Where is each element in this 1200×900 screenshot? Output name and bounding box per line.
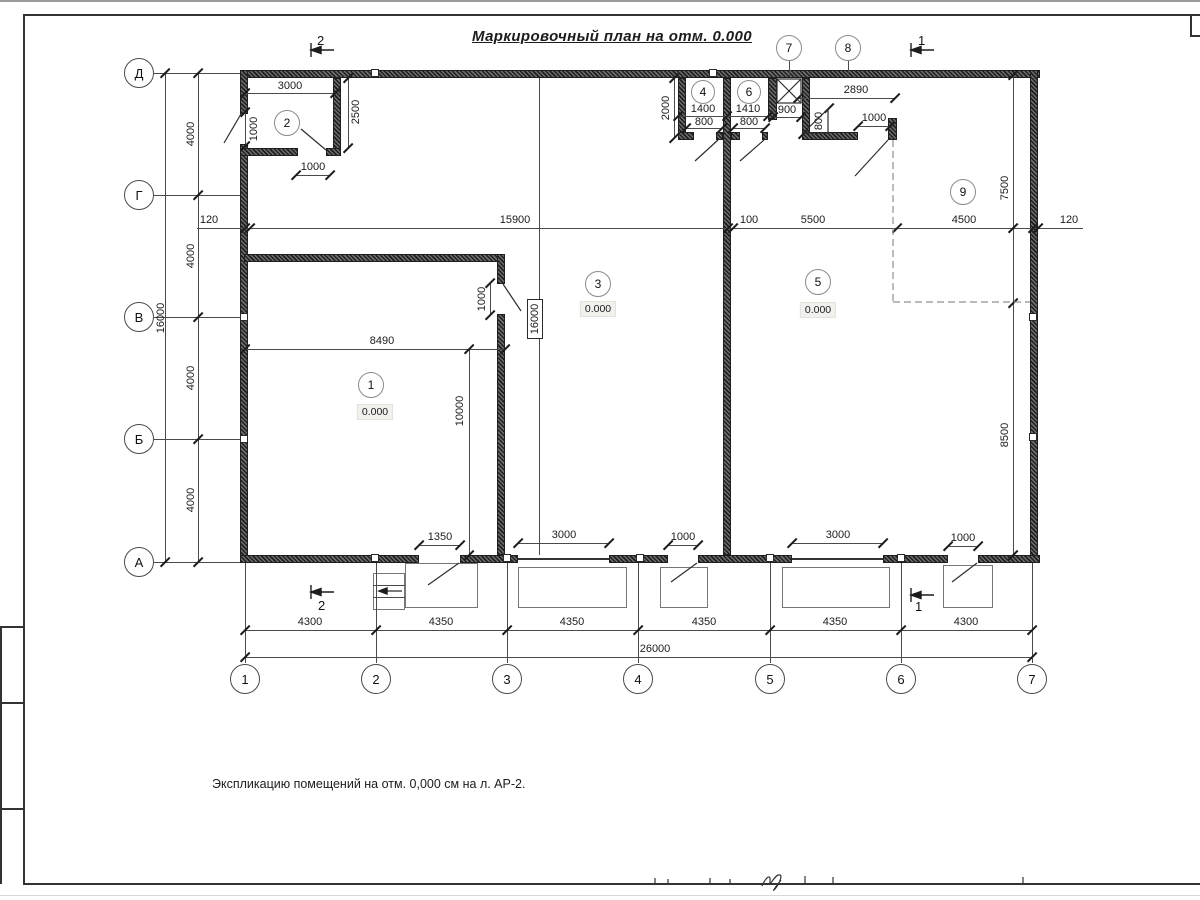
dim-label: 120 — [200, 214, 218, 226]
dim-label: 1000 — [951, 532, 975, 544]
dim-label: 120 — [1060, 214, 1078, 226]
linework-layer — [0, 0, 1200, 900]
elevation-mark: 0.000 — [357, 404, 393, 420]
axis-bubble-col: 2 — [361, 664, 391, 694]
dim-label: 2500 — [350, 100, 362, 124]
axis-bubble-row: Г — [124, 180, 154, 210]
axis-label: 1 — [241, 672, 248, 687]
room-bubble: 3 — [585, 271, 611, 297]
dim-label: 100 — [740, 214, 758, 226]
dim-label: 1350 — [428, 531, 452, 543]
axis-bubble-col: 6 — [886, 664, 916, 694]
dim-label: 3000 — [552, 529, 576, 541]
room-number: 2 — [284, 116, 291, 130]
axis-bubble-row: Б — [124, 424, 154, 454]
dim-label: 4000 — [185, 122, 197, 146]
axis-label: 6 — [897, 672, 904, 687]
dim-label: 26000 — [640, 643, 671, 655]
axis-bubble-row: В — [124, 302, 154, 332]
dim-label: 2000 — [660, 96, 672, 120]
axis-bubble-row: А — [124, 547, 154, 577]
axis-bubble-row: Д — [124, 58, 154, 88]
axis-bubble-col: 3 — [492, 664, 522, 694]
dim-label: 1410 — [736, 103, 760, 115]
axis-label: В — [135, 310, 144, 325]
dim-label: 15900 — [500, 214, 531, 226]
dim-label: 4350 — [560, 616, 584, 628]
dim-label: 1000 — [671, 531, 695, 543]
dim-label: 8490 — [370, 335, 394, 347]
room-bubble: 5 — [805, 269, 831, 295]
dim-label: 1400 — [691, 103, 715, 115]
dim-label: 900 — [778, 104, 796, 116]
axis-label: Г — [135, 188, 142, 203]
dim-label: 10000 — [454, 396, 466, 427]
axis-label: Д — [135, 66, 144, 81]
dim-label: 2890 — [844, 84, 868, 96]
dim-label: 16000 — [529, 304, 541, 335]
room-bubble: 4 — [691, 80, 715, 104]
elevation-mark: 0.000 — [800, 302, 836, 318]
room-number: 5 — [815, 275, 822, 289]
room-bubble: 9 — [950, 179, 976, 205]
axis-label: А — [135, 555, 144, 570]
signature-scribble — [762, 875, 781, 891]
dim-label: 16000 — [155, 303, 167, 334]
room-bubble: 7 — [776, 35, 802, 61]
room-bubble: 1 — [358, 372, 384, 398]
dim-label: 4350 — [823, 616, 847, 628]
room-bubble: 8 — [835, 35, 861, 61]
axis-label: 3 — [503, 672, 510, 687]
room-number: 3 — [595, 277, 602, 291]
dim-label: 7500 — [999, 176, 1011, 200]
axis-label: 5 — [766, 672, 773, 687]
axis-label: Б — [135, 432, 144, 447]
dim-label: 1000 — [476, 287, 488, 311]
dim-label: 800 — [695, 116, 713, 128]
elevation-mark: 0.000 — [580, 301, 616, 317]
axis-label: 2 — [372, 672, 379, 687]
axis-bubble-col: 7 — [1017, 664, 1047, 694]
dim-label: 5500 — [801, 214, 825, 226]
axis-bubble-col: 4 — [623, 664, 653, 694]
room-number: 7 — [786, 41, 793, 55]
dim-label: 4350 — [429, 616, 453, 628]
room-bubble: 6 — [737, 80, 761, 104]
section-label: 1 — [915, 599, 922, 614]
dim-label: 3000 — [826, 529, 850, 541]
axis-label: 4 — [634, 672, 641, 687]
room-number: 8 — [845, 41, 852, 55]
dim-label: 4000 — [185, 244, 197, 268]
section-label: 1 — [918, 33, 925, 48]
dim-label: 1000 — [862, 112, 886, 124]
section-label: 2 — [317, 33, 324, 48]
drawing-sheet: Маркировочный план на отм. 0.000 Эксплик… — [0, 0, 1200, 900]
axis-label: 7 — [1028, 672, 1035, 687]
axis-bubble-col: 5 — [755, 664, 785, 694]
dim-label: 8500 — [999, 423, 1011, 447]
room-number: 1 — [368, 378, 375, 392]
dim-label: 800 — [740, 116, 758, 128]
room-number: 6 — [746, 85, 753, 99]
room-number: 9 — [960, 185, 967, 199]
dim-label: 4000 — [185, 488, 197, 512]
axis-bubble-col: 1 — [230, 664, 260, 694]
room-bubble: 2 — [274, 110, 300, 136]
dim-label: 3000 — [278, 80, 302, 92]
dim-label: 4300 — [298, 616, 322, 628]
dim-label: 1000 — [248, 117, 260, 141]
dim-label: 4300 — [954, 616, 978, 628]
dim-label: 4000 — [185, 366, 197, 390]
section-label: 2 — [318, 598, 325, 613]
dim-label: 4500 — [952, 214, 976, 226]
dim-label: 1000 — [301, 161, 325, 173]
dim-label: 4350 — [692, 616, 716, 628]
dim-label: 800 — [813, 112, 825, 130]
room-number: 4 — [700, 85, 707, 99]
